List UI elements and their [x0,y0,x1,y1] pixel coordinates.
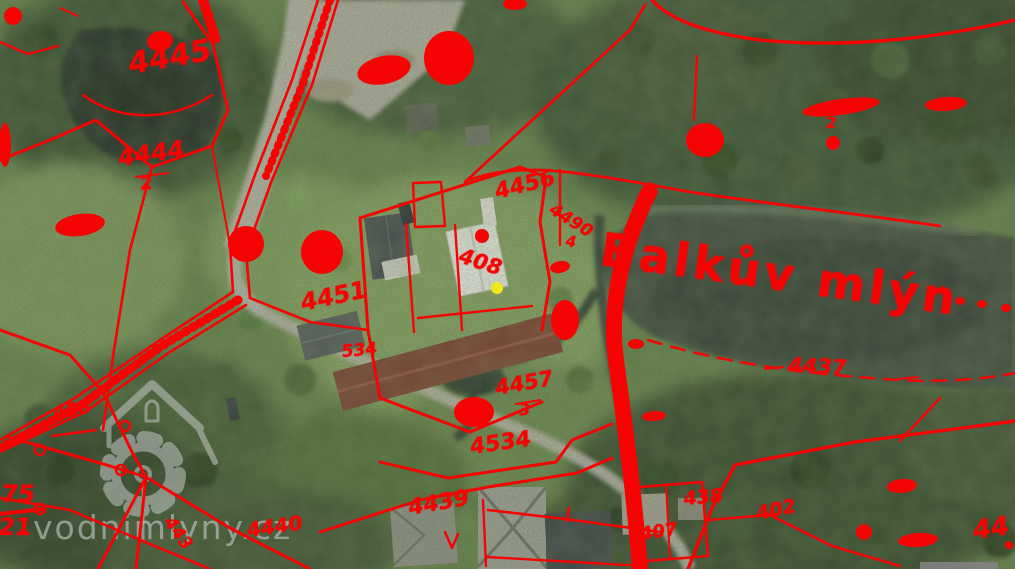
attribution-bar [920,562,998,569]
red-ink-blobs [0,0,1013,549]
survey-point-rings [35,421,130,514]
mill-poi-marker[interactable] [491,282,503,294]
cadastral-overlay-layer [0,0,1015,569]
hatched-channel-bands [0,0,657,569]
parcel-boundary-lines [0,0,1015,569]
map-viewport[interactable]: vodnimlyny.cz [0,0,1015,569]
